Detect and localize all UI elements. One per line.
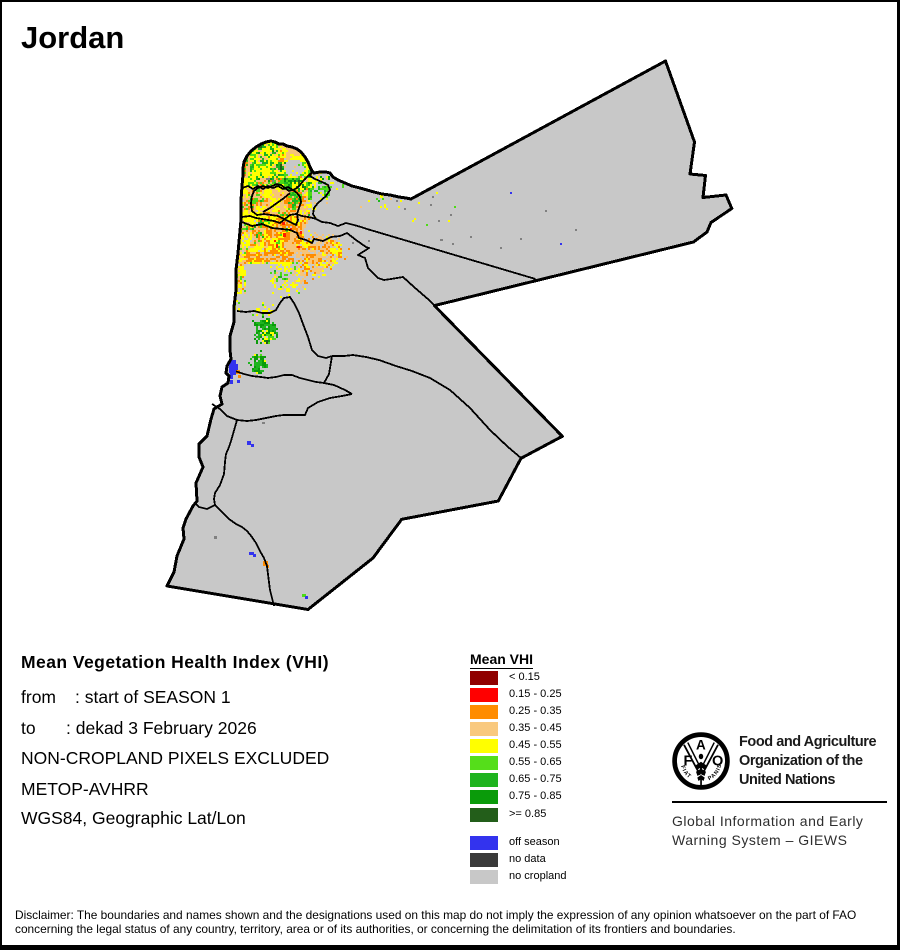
svg-text:A: A <box>696 738 706 753</box>
